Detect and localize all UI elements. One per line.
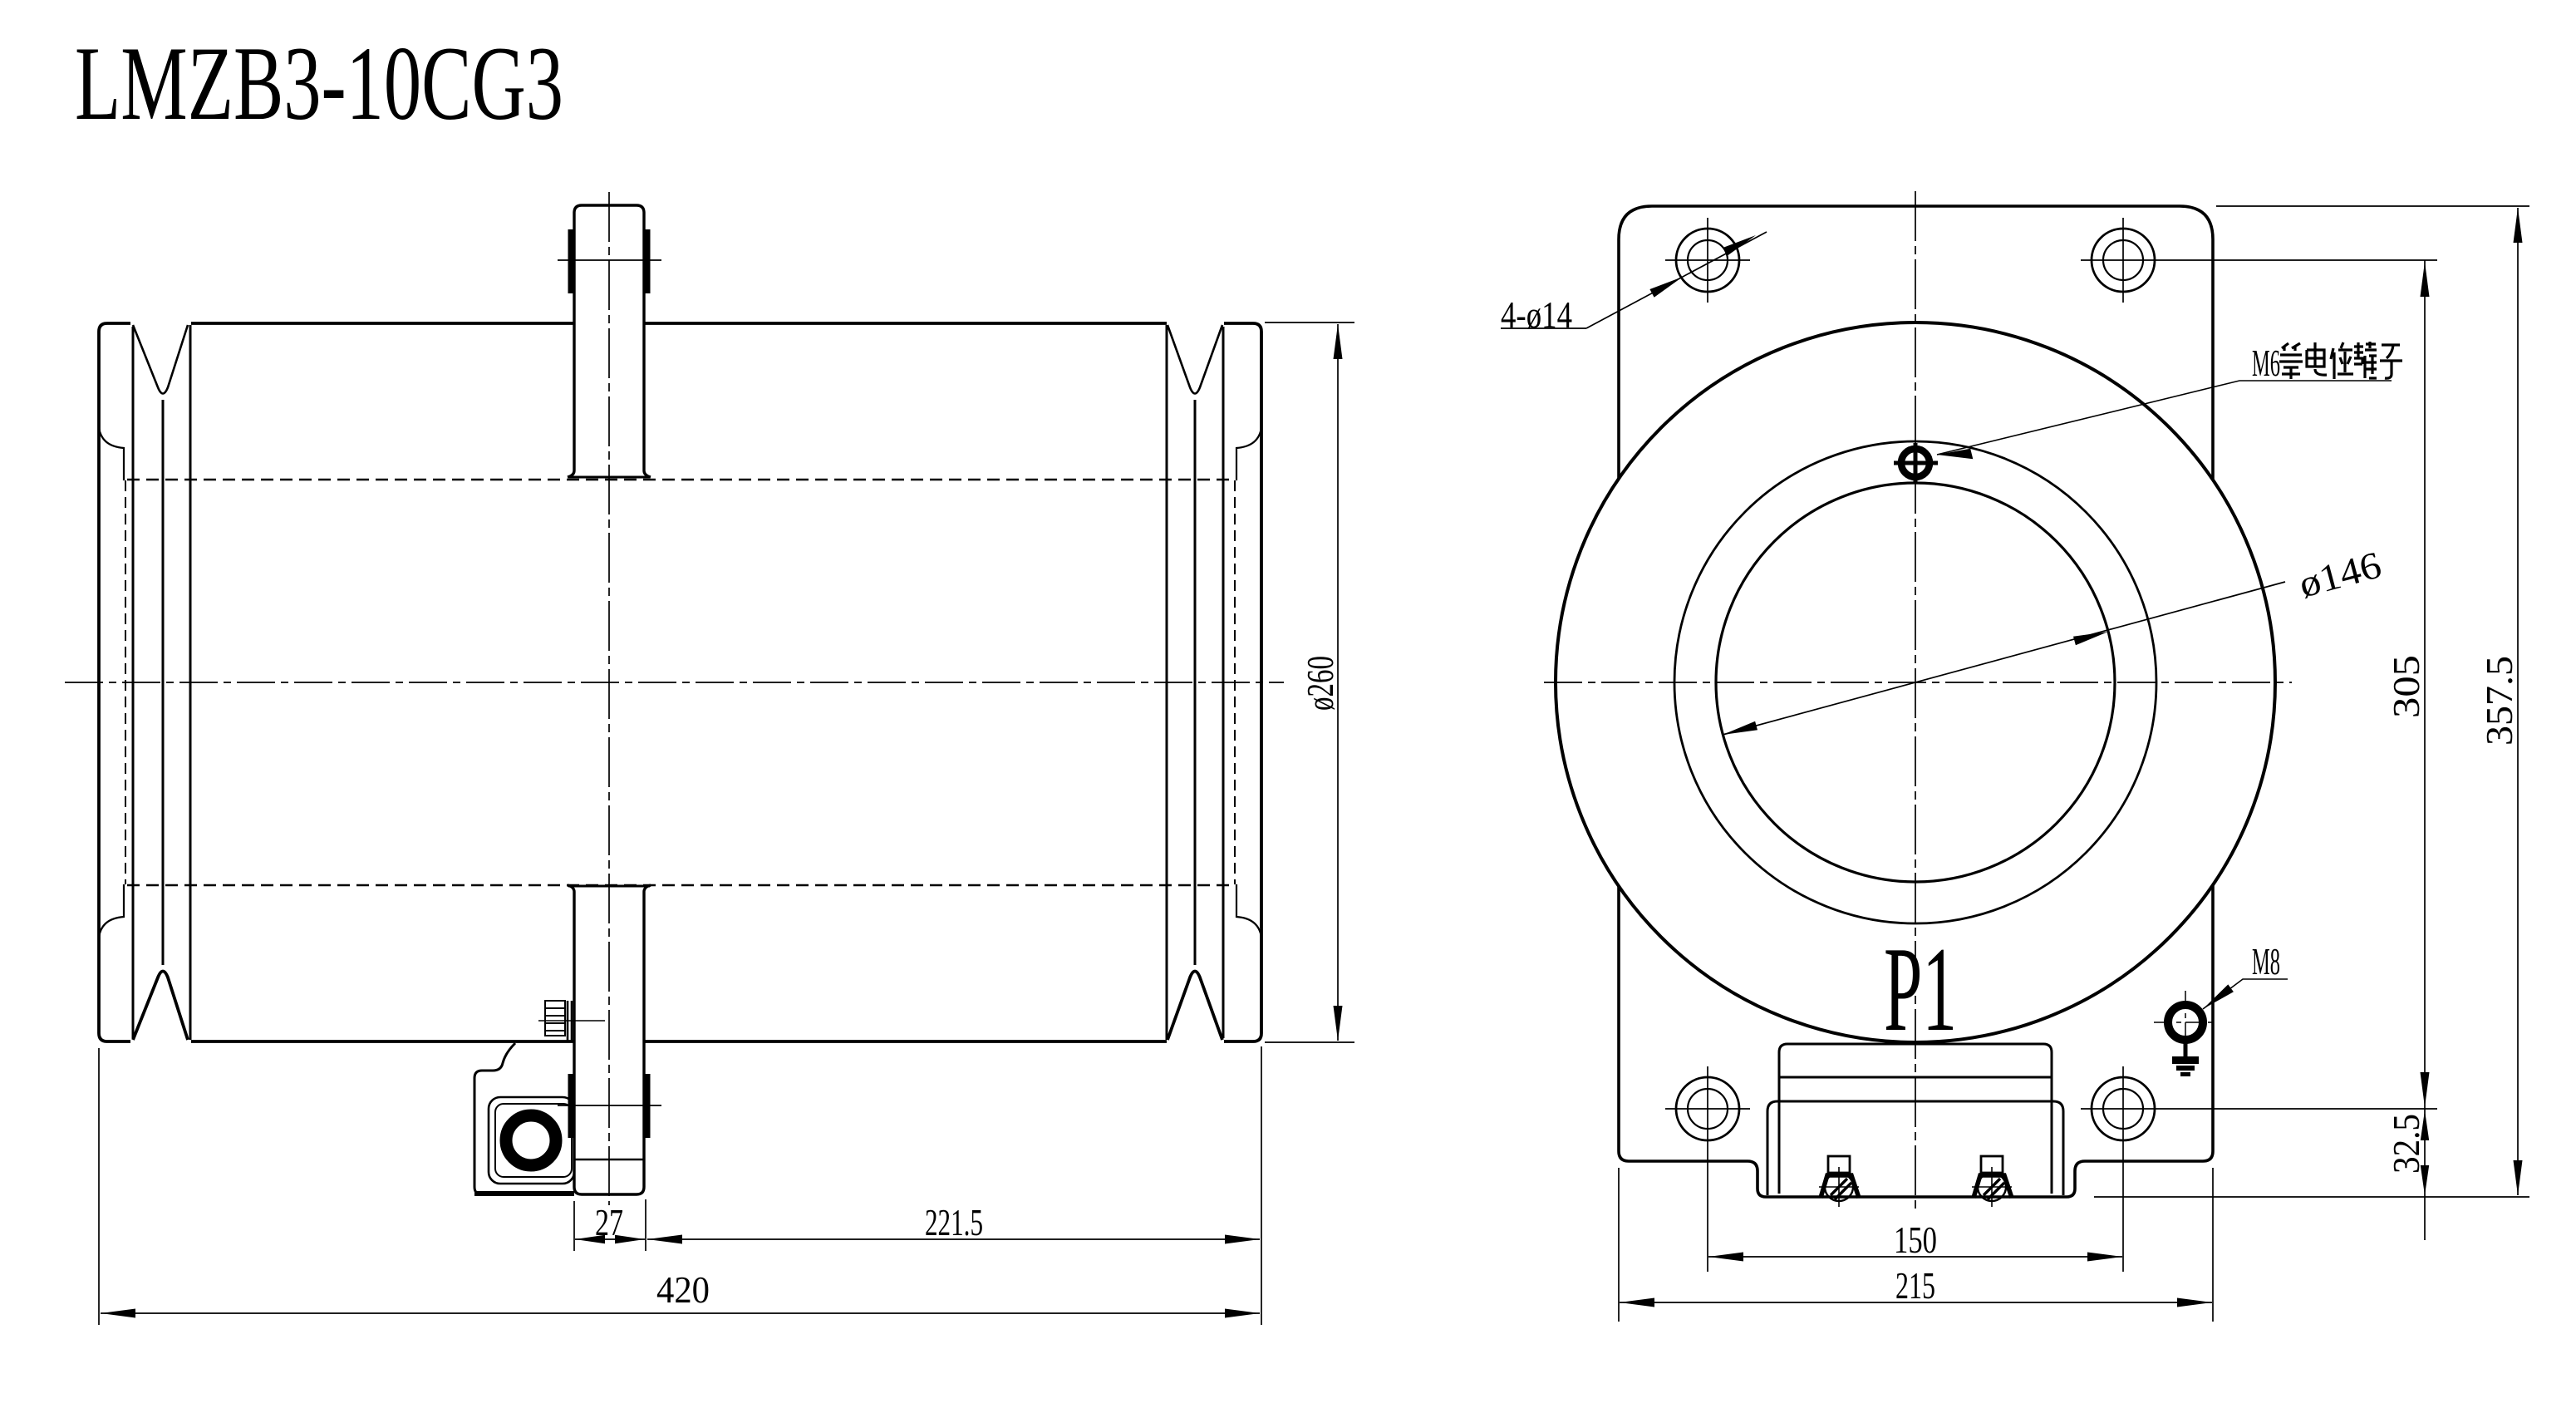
svg-text:305: 305 bbox=[2385, 655, 2427, 718]
svg-text:215: 215 bbox=[1895, 1264, 1935, 1307]
svg-text:P1: P1 bbox=[1884, 922, 1957, 1056]
svg-text:32.5: 32.5 bbox=[2385, 1114, 2427, 1174]
svg-text:27: 27 bbox=[595, 1201, 623, 1243]
svg-text:M6: M6 bbox=[2252, 342, 2280, 384]
svg-text:M8: M8 bbox=[2252, 940, 2280, 982]
svg-text:LMZB3-10CG3: LMZB3-10CG3 bbox=[75, 26, 563, 142]
svg-text:420: 420 bbox=[656, 1268, 710, 1311]
svg-text:221.5: 221.5 bbox=[925, 1201, 983, 1243]
svg-text:ø260: ø260 bbox=[1299, 656, 1341, 711]
svg-text:150: 150 bbox=[1894, 1219, 1937, 1261]
svg-text:357.5: 357.5 bbox=[2478, 656, 2520, 746]
svg-text:4-ø14: 4-ø14 bbox=[1501, 293, 1572, 336]
